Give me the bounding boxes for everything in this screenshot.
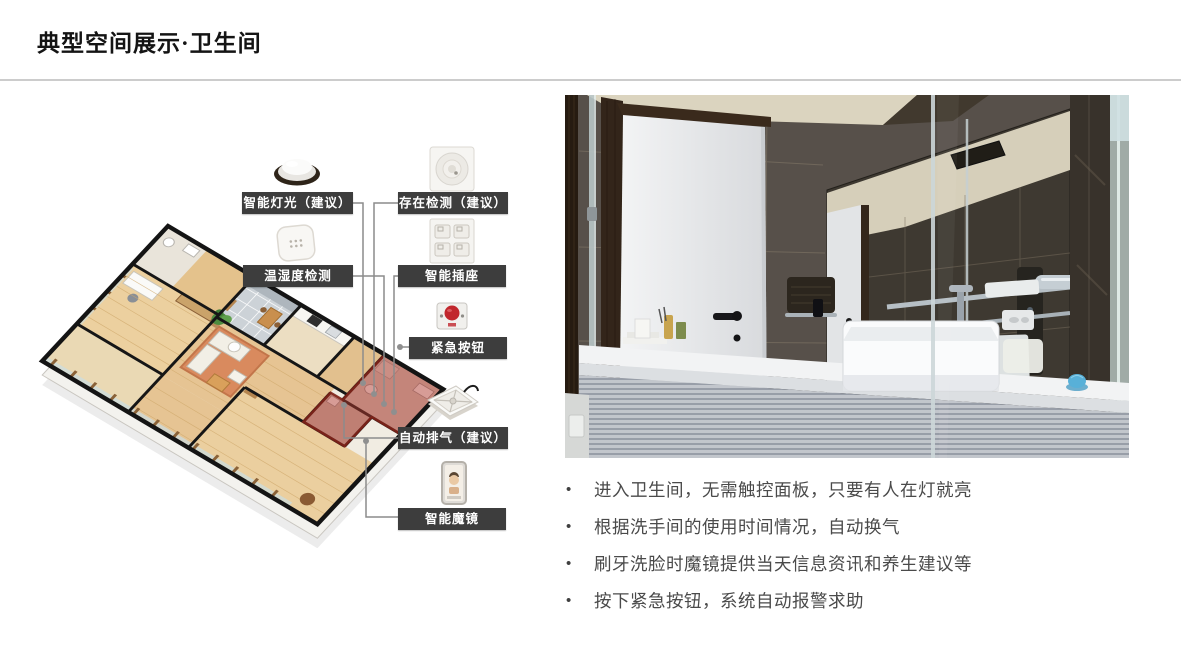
emergency-button-icon [435, 300, 469, 332]
device-label-smart-light: 智能灯光（建议） [242, 192, 353, 214]
bullet-text: 按下紧急按钮，系统自动报警求助 [594, 588, 864, 614]
page-title: 典型空间展示·卫生间 [37, 24, 262, 58]
ceiling-light-icon [272, 148, 322, 188]
bullet-item: • 刷牙洗脸时魔镜提供当天信息资讯和养生建议等 [562, 551, 1172, 588]
smart-socket-icon [428, 217, 476, 265]
feature-bullet-list: • 进入卫生间，无需触控面板，只要有人在灯就亮 • 根据洗手间的使用时间情况，自… [562, 477, 1172, 625]
bathroom-photo [565, 95, 1129, 458]
floor-plan-illustration [18, 212, 458, 548]
temp-humidity-sensor-icon [274, 222, 318, 264]
bullet-dot: • [562, 477, 594, 503]
bullet-text: 刷牙洗脸时魔镜提供当天信息资讯和养生建议等 [594, 551, 972, 577]
bullet-item: • 按下紧急按钮，系统自动报警求助 [562, 588, 1172, 625]
title-divider [0, 79, 1181, 81]
bullet-dot: • [562, 551, 594, 577]
bullet-item: • 根据洗手间的使用时间情况，自动换气 [562, 514, 1172, 551]
smart-mirror-icon [437, 460, 471, 508]
bullet-text: 进入卫生间，无需触控面板，只要有人在灯就亮 [594, 477, 972, 503]
device-label-emergency-button: 紧急按钮 [409, 337, 507, 359]
bullet-text: 根据洗手间的使用时间情况，自动换气 [594, 514, 900, 540]
bullet-item: • 进入卫生间，无需触控面板，只要有人在灯就亮 [562, 477, 1172, 514]
slide-root: 典型空间展示·卫生间 [0, 0, 1181, 658]
bullet-dot: • [562, 514, 594, 540]
bullet-dot: • [562, 588, 594, 614]
presence-sensor-icon [429, 146, 475, 192]
exhaust-fan-icon [420, 378, 482, 430]
device-label-smart-socket: 智能插座 [398, 265, 506, 287]
device-label-temp-humidity: 温湿度检测 [243, 265, 353, 287]
device-label-smart-mirror: 智能魔镜 [398, 508, 506, 530]
device-label-auto-vent: 自动排气（建议） [398, 427, 508, 449]
device-label-presence-sensor: 存在检测（建议） [398, 192, 508, 214]
